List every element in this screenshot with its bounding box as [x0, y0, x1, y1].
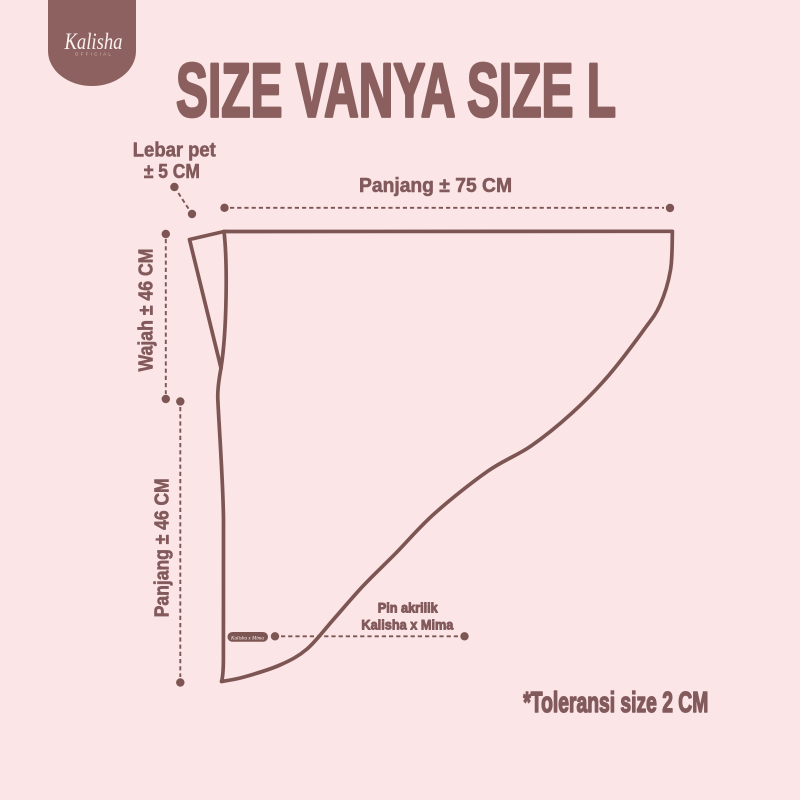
svg-text:SIZE VANYA SIZE L: SIZE VANYA SIZE L: [176, 49, 616, 134]
svg-text:Kalisha: Kalisha: [64, 29, 123, 54]
svg-text:Panjang ± 75 CM: Panjang ± 75 CM: [359, 175, 512, 197]
svg-text:± 5 CM: ± 5 CM: [144, 161, 200, 183]
svg-text:Kalisha x Mima: Kalisha x Mima: [230, 635, 264, 641]
svg-text:Pin akrilik: Pin akrilik: [378, 600, 438, 616]
svg-text:*Toleransi size 2 CM: *Toleransi size 2 CM: [523, 687, 708, 719]
svg-text:Kalisha x Mima: Kalisha x Mima: [361, 617, 453, 633]
svg-text:Panjang ± 46 CM: Panjang ± 46 CM: [151, 478, 173, 617]
svg-text:Wajah ± 46 CM: Wajah ± 46 CM: [136, 249, 158, 372]
svg-text:Lebar pet: Lebar pet: [133, 140, 216, 162]
svg-text:OFFICIAL: OFFICIAL: [75, 52, 113, 57]
